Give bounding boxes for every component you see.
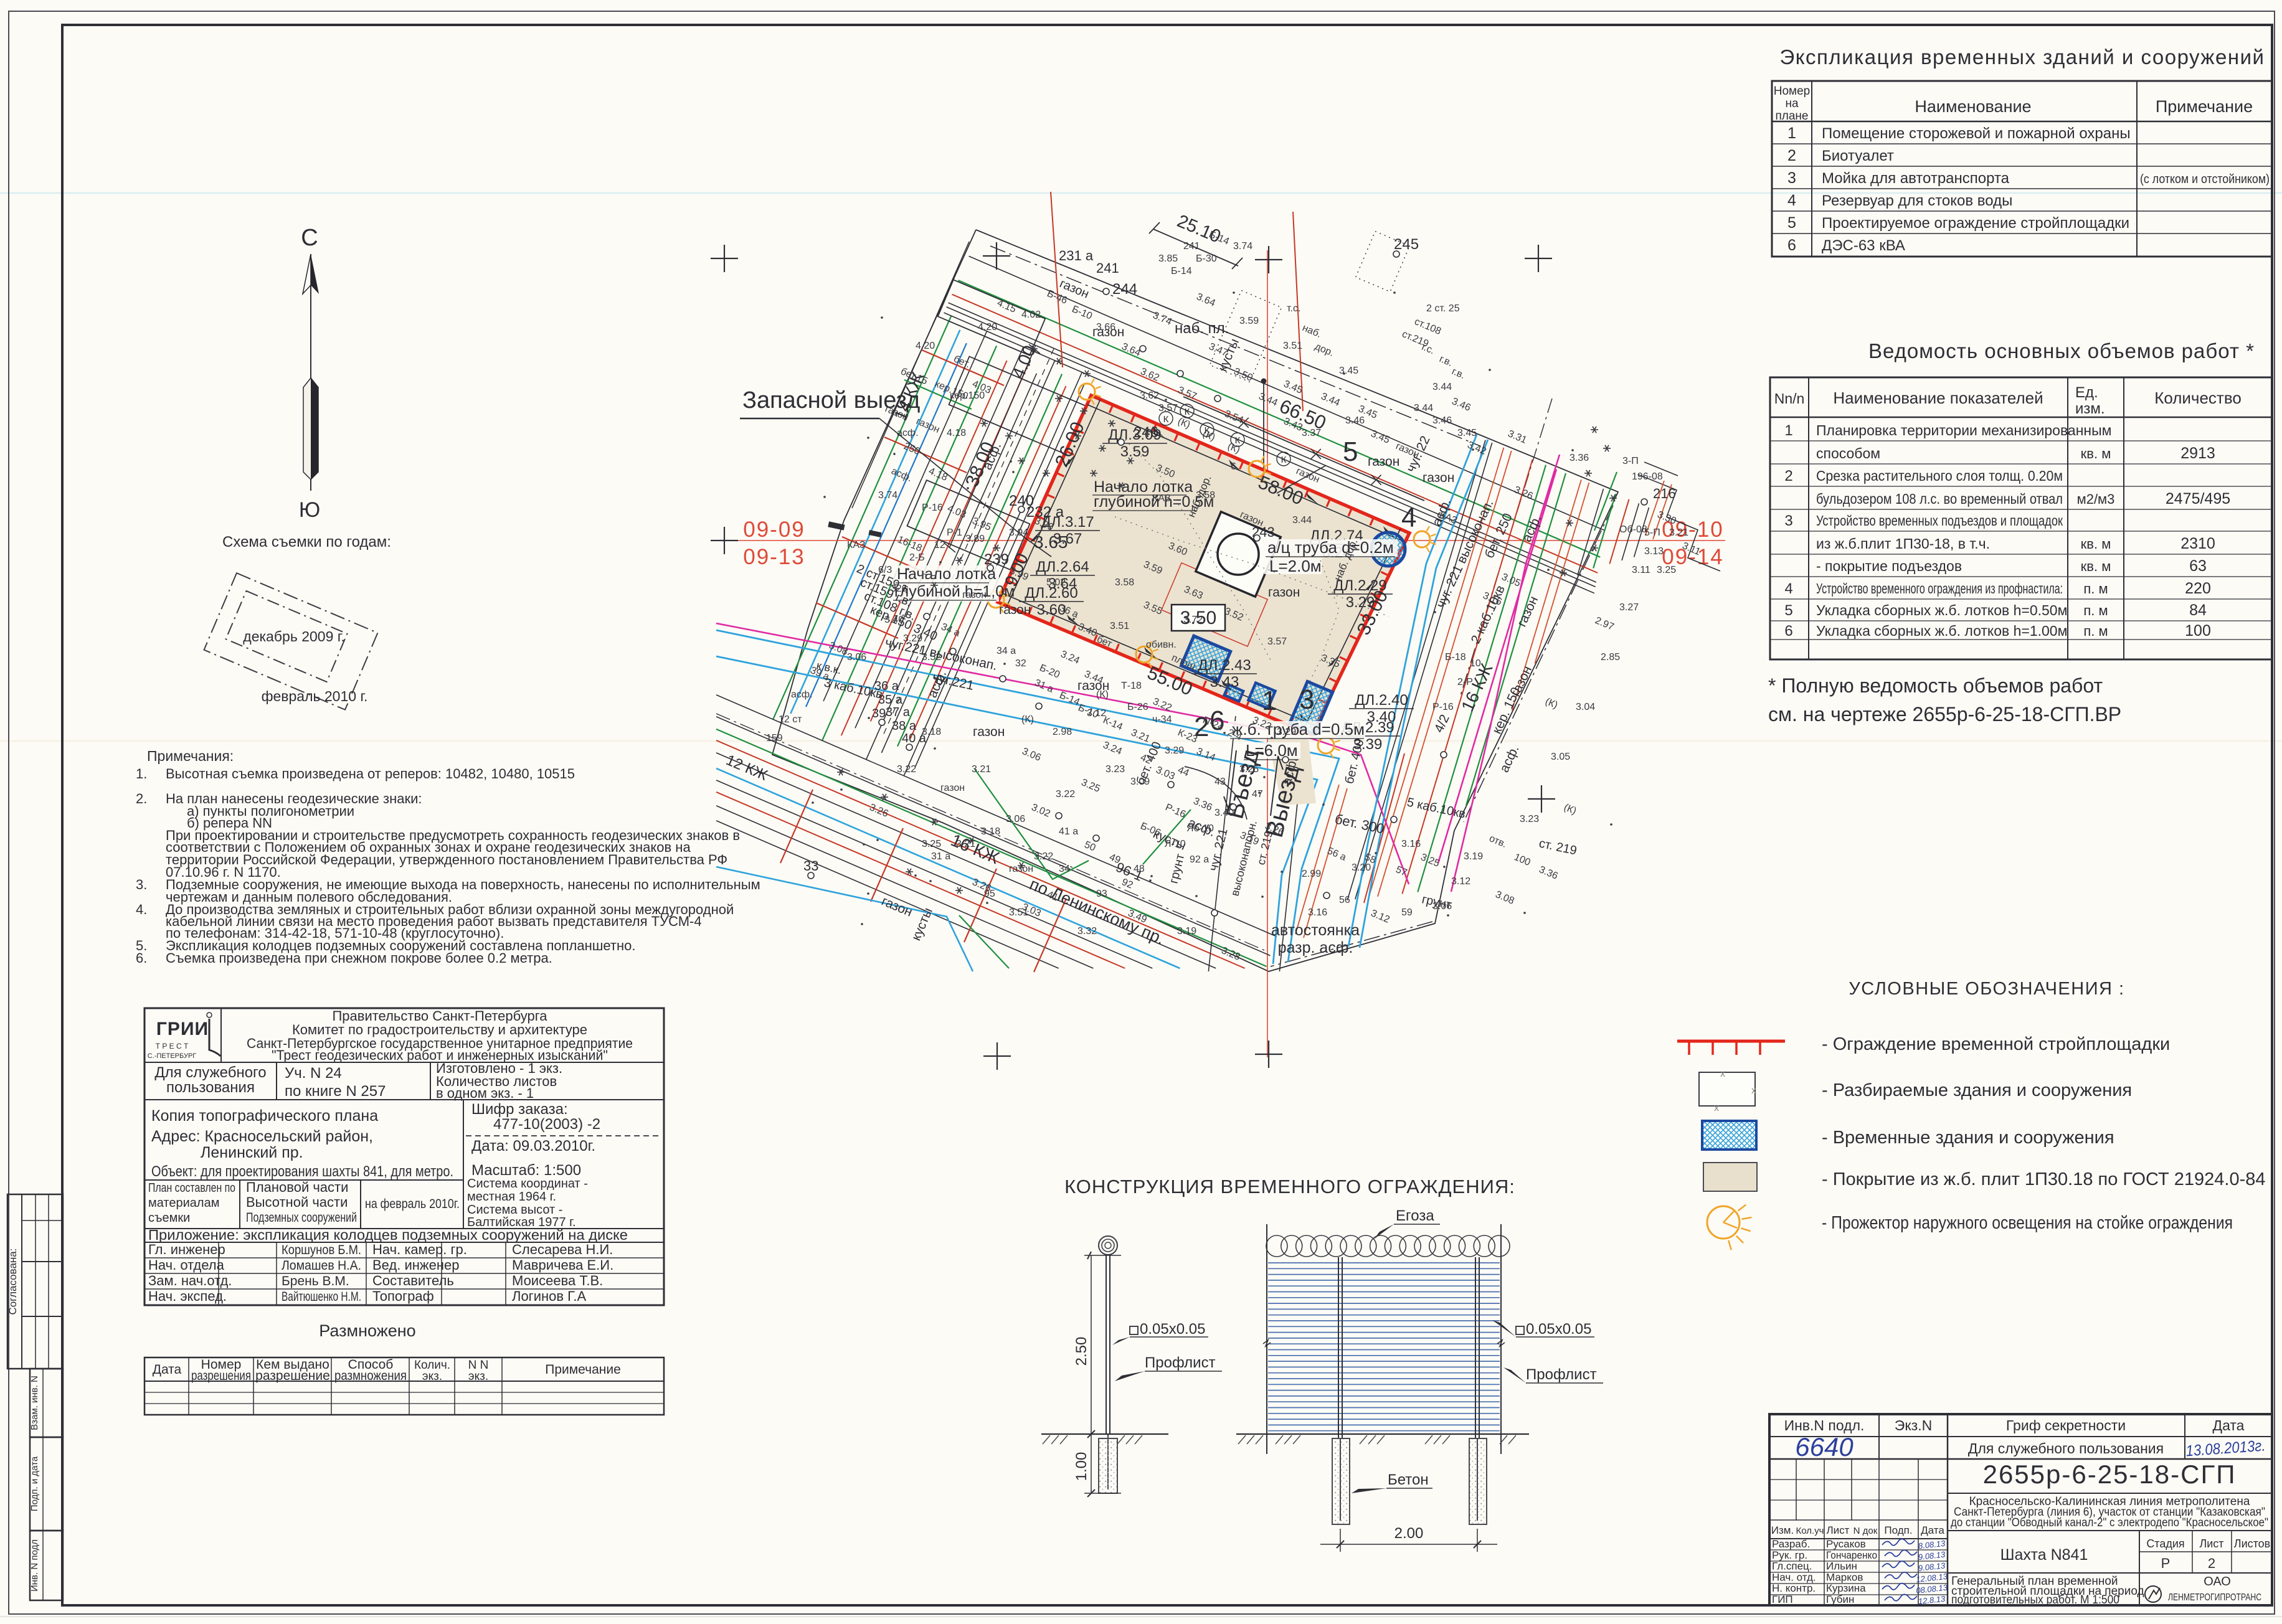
svg-text:12: 12 bbox=[934, 540, 945, 550]
svg-text:Инв.N подл.: Инв.N подл. bbox=[1784, 1417, 1865, 1433]
svg-text:Яб-10: Яб-10 bbox=[1186, 823, 1214, 834]
svg-text:Nn/n: Nn/n bbox=[1774, 390, 1805, 407]
svg-text:3.59: 3.59 bbox=[1239, 316, 1259, 326]
svg-text:3.89: 3.89 bbox=[965, 534, 985, 544]
svg-text:Курзина: Курзина bbox=[1826, 1582, 1866, 1594]
svg-text:1: 1 bbox=[1787, 125, 1796, 142]
svg-text:- Покрытие из ж.б. плит: - Покрытие из ж.б. плит 1П30.18 по ГОСТ … bbox=[1822, 1169, 2266, 1189]
svg-text:* Полную ведомость объемов: * Полную ведомость объемов работ bbox=[1768, 674, 2103, 697]
svg-text:6/3: 6/3 bbox=[878, 565, 892, 575]
svg-text:съемки: съемки bbox=[148, 1211, 190, 1225]
svg-text:3.44: 3.44 bbox=[1414, 403, 1433, 413]
svg-text:План составлен по: План составлен по bbox=[148, 1181, 235, 1195]
svg-text:Согласована:: Согласована: bbox=[7, 1249, 19, 1315]
svg-text:Для служебного: Для служебного bbox=[154, 1064, 266, 1081]
svg-text:4: 4 bbox=[1787, 192, 1796, 209]
svg-text:Л-10: Л-10 bbox=[1165, 839, 1186, 849]
svg-text:Размножено: Размножено bbox=[319, 1321, 415, 1340]
svg-text:Нач. камер. гр.: Нач. камер. гр. bbox=[372, 1242, 467, 1257]
svg-text:3.65: 3.65 bbox=[1034, 532, 1068, 552]
svg-text:3.52: 3.52 bbox=[922, 652, 941, 663]
svg-text:3.21: 3.21 bbox=[972, 764, 991, 775]
svg-text:3.25: 3.25 bbox=[1239, 764, 1259, 775]
svg-text:см. на чертеже 2655р-6-25-1: см. на чертеже 2655р-6-25-18-СГП.ВР bbox=[1768, 703, 2121, 725]
svg-text:3.25: 3.25 bbox=[922, 839, 941, 849]
svg-text:6.: 6. bbox=[136, 950, 147, 966]
svg-text:2.00: 2.00 bbox=[1394, 1525, 1424, 1542]
svg-text:3.62: 3.62 bbox=[1140, 390, 1159, 401]
svg-text:6: 6 bbox=[1787, 237, 1796, 254]
svg-text:10: 10 bbox=[1470, 658, 1481, 669]
svg-text:Резервуар для стоков воды: Резервуар для стоков воды bbox=[1822, 192, 2012, 209]
svg-text:3.23: 3.23 bbox=[1520, 814, 1539, 824]
svg-text:x: x bbox=[1714, 1103, 1719, 1113]
svg-text:2.98: 2.98 bbox=[1053, 727, 1072, 737]
svg-text:Егоза: Егоза bbox=[1396, 1207, 1434, 1224]
svg-text:Лист: Лист bbox=[2199, 1537, 2223, 1550]
svg-text:- Ограждение временной стр: - Ограждение временной стройплощадки bbox=[1822, 1034, 2170, 1054]
svg-text:Гончаренко: Гончаренко bbox=[1826, 1549, 1877, 1561]
svg-text:3.11: 3.11 bbox=[1632, 565, 1650, 575]
svg-text:3.29: 3.29 bbox=[1165, 745, 1184, 756]
svg-text:Взам. инв. N: Взам. инв. N bbox=[29, 1376, 40, 1430]
svg-text:Съемка произведена при снеж: Съемка произведена при снежном покрове б… bbox=[166, 950, 552, 966]
svg-text:Подп.: Подп. bbox=[1884, 1524, 1912, 1536]
svg-text:241: 241 bbox=[1096, 260, 1119, 276]
svg-text:Стадия: Стадия bbox=[2146, 1537, 2184, 1550]
svg-text:Т Р Е С Т: Т Р Е С Т bbox=[156, 1042, 189, 1050]
svg-text:3.20: 3.20 bbox=[1352, 862, 1371, 873]
svg-text:84: 84 bbox=[2189, 602, 2207, 619]
svg-text:февраль 2010 г.: февраль 2010 г. bbox=[262, 688, 368, 704]
svg-text:бульдозером 108 л.с. во вре: бульдозером 108 л.с. во временный отвал bbox=[1816, 491, 2063, 507]
svg-text:5: 5 bbox=[1343, 437, 1358, 467]
svg-text:41 а: 41 а bbox=[1059, 826, 1078, 837]
svg-text:3: 3 bbox=[1784, 512, 1792, 529]
svg-text:1.00: 1.00 bbox=[1073, 1452, 1090, 1481]
svg-text:Срезка растительного слоя т: Срезка растительного слоя толщ. 0.20м bbox=[1816, 468, 2063, 484]
svg-text:3.22: 3.22 bbox=[1034, 851, 1053, 862]
svg-text:100: 100 bbox=[2185, 622, 2211, 640]
svg-text:Дата: Дата bbox=[153, 1362, 182, 1377]
svg-text:Профлист: Профлист bbox=[1145, 1354, 1216, 1371]
svg-text:3.51: 3.51 bbox=[1009, 907, 1028, 918]
svg-text:3.29: 3.29 bbox=[1277, 727, 1296, 737]
svg-text:разрешения: разрешения bbox=[191, 1369, 251, 1383]
svg-text:2: 2 bbox=[1787, 147, 1796, 164]
svg-text:34: 34 bbox=[1059, 864, 1070, 874]
svg-text:Ю: Ю bbox=[299, 498, 320, 522]
svg-text:КАЗ: КАЗ bbox=[1152, 493, 1170, 504]
svg-text:3.23: 3.23 bbox=[1105, 764, 1125, 775]
svg-text:по книге N 257: по книге N 257 bbox=[285, 1083, 386, 1100]
svg-text:Система координат -: Система координат - bbox=[467, 1177, 588, 1191]
svg-text:газон: газон bbox=[1368, 455, 1399, 469]
svg-text:Приложение: экспликация коло: Приложение: экспликация колодцев подземн… bbox=[148, 1227, 628, 1243]
svg-text:К: К bbox=[1185, 407, 1190, 417]
svg-text:Примечания:: Примечания: bbox=[147, 748, 234, 764]
svg-text:Слесарева Н.И.: Слесарева Н.И. bbox=[512, 1242, 613, 1257]
svg-text:К: К bbox=[1281, 455, 1287, 465]
svg-text:93: 93 bbox=[1096, 889, 1107, 899]
svg-text:Р: Р bbox=[2161, 1556, 2171, 1571]
svg-text:3.: 3. bbox=[136, 877, 147, 892]
svg-text:N док: N док bbox=[1854, 1526, 1878, 1536]
svg-text:К: К bbox=[1163, 414, 1169, 425]
svg-text:2 ст. 25: 2 ст. 25 bbox=[1426, 303, 1460, 314]
svg-text:3.19: 3.19 bbox=[1177, 926, 1196, 937]
svg-text:Высотная съемка произведена: Высотная съемка произведена от реперов: … bbox=[166, 766, 575, 781]
svg-text:кв. м: кв. м bbox=[2081, 536, 2111, 552]
svg-text:ДЛ.2.43: ДЛ.2.43 bbox=[1198, 657, 1251, 674]
svg-text:Гл. инженер: Гл. инженер bbox=[148, 1242, 225, 1257]
svg-text:Изм.: Изм. bbox=[1771, 1524, 1794, 1536]
svg-text:3.58: 3.58 bbox=[1115, 577, 1134, 588]
svg-text:32: 32 bbox=[1015, 658, 1026, 669]
svg-text:разр. асф.: разр. асф. bbox=[1278, 939, 1353, 956]
svg-text:(К): (К) bbox=[1021, 714, 1034, 725]
svg-text:4.: 4. bbox=[136, 902, 147, 917]
svg-text:3.45: 3.45 bbox=[1457, 428, 1477, 438]
svg-text:477-10(2003) -2: 477-10(2003) -2 bbox=[493, 1116, 600, 1133]
svg-text:3.29: 3.29 bbox=[903, 633, 922, 644]
svg-text:3.22: 3.22 bbox=[897, 764, 916, 775]
svg-text:т.с.: т.с. bbox=[1287, 303, 1300, 314]
svg-text:39: 39 bbox=[872, 707, 886, 720]
svg-text:x: x bbox=[1751, 1085, 1756, 1096]
svg-text:наб. пл.: наб. пл. bbox=[1175, 320, 1229, 337]
svg-text:Примечание: Примечание bbox=[2156, 97, 2253, 116]
svg-text:газон: газон bbox=[1009, 864, 1033, 874]
svg-text:246: 246 bbox=[1134, 424, 1158, 441]
svg-text:3.94: 3.94 bbox=[1009, 527, 1028, 538]
svg-text:ЛЕНМЕТРОГИПРОТРАНС: ЛЕНМЕТРОГИПРОТРАНС bbox=[2168, 1592, 2261, 1603]
svg-text:31 а: 31 а bbox=[931, 851, 950, 862]
svg-text:Количество: Количество bbox=[2154, 389, 2242, 407]
svg-text:Нач. экспед.: Нач. экспед. bbox=[148, 1288, 227, 1304]
svg-text:Устройство временного огражден: Устройство временного ограждения из проф… bbox=[1816, 580, 2063, 597]
svg-text:5: 5 bbox=[1784, 602, 1792, 619]
svg-text:Подп. и дата: Подп. и дата bbox=[29, 1456, 40, 1511]
svg-text:Наименование показателей: Наименование показателей bbox=[1833, 389, 2043, 407]
svg-text:- Временные здания и соор: - Временные здания и сооружения bbox=[1822, 1128, 2114, 1148]
svg-text:2.50: 2.50 bbox=[1073, 1337, 1090, 1366]
svg-text:Начало лотка: Начало лотка bbox=[897, 565, 996, 583]
svg-text:Шахта N841: Шахта N841 bbox=[2000, 1546, 2088, 1564]
svg-text:местная 1964 г.: местная 1964 г. bbox=[467, 1190, 556, 1204]
svg-text:2655р-6-25-18-СГП: 2655р-6-25-18-СГП bbox=[1983, 1460, 2237, 1489]
svg-text:Мойка для автотранспорта: Мойка для автотранспорта bbox=[1822, 170, 2010, 187]
svg-text:59: 59 bbox=[1401, 907, 1413, 918]
svg-text:Ведомость основных объемов: Ведомость основных объемов работ * bbox=[1868, 339, 2255, 362]
svg-text:Подземных сооружений: Подземных сооружений bbox=[246, 1211, 357, 1225]
svg-text:4: 4 bbox=[1784, 580, 1792, 597]
svg-text:Топограф: Топограф bbox=[372, 1288, 434, 1304]
svg-text:экз.: экз. bbox=[468, 1370, 488, 1383]
svg-text:3.45: 3.45 bbox=[1339, 366, 1358, 376]
svg-text:Масштаб: 1:500: Масштаб: 1:500 bbox=[471, 1162, 581, 1179]
svg-text:в одном экз. - 1: в одном экз. - 1 bbox=[436, 1085, 534, 1101]
svg-text:Вед. инженер: Вед. инженер bbox=[372, 1257, 460, 1273]
svg-text:газон: газон bbox=[1423, 471, 1454, 485]
svg-text:плане: плане bbox=[1775, 110, 1808, 123]
svg-text:3.46: 3.46 bbox=[1345, 415, 1365, 426]
svg-text:Р-16: Р-16 bbox=[922, 503, 943, 513]
svg-text:Мавричева Е.И.: Мавричева Е.И. bbox=[512, 1257, 613, 1273]
svg-text:Рук. гр.: Рук. гр. bbox=[1772, 1549, 1807, 1561]
svg-text:3.19: 3.19 bbox=[1464, 851, 1483, 862]
svg-text:Нач. отд.: Нач. отд. bbox=[1772, 1571, 1816, 1583]
svg-text:3.27: 3.27 bbox=[1619, 602, 1639, 613]
svg-text:Моисеева Т.В.: Моисеева Т.В. bbox=[512, 1273, 603, 1288]
svg-text:220: 220 bbox=[2185, 580, 2211, 597]
svg-text:подготовительных работ. М 1:5: подготовительных работ. М 1:500 bbox=[1951, 1593, 2119, 1607]
svg-text:Листов: Листов bbox=[2234, 1537, 2270, 1550]
svg-text:3.16: 3.16 bbox=[1401, 839, 1421, 849]
svg-text:3: 3 bbox=[1787, 169, 1796, 187]
svg-text:К: К bbox=[1235, 435, 1241, 446]
svg-text:2.99: 2.99 bbox=[1302, 869, 1321, 879]
svg-text:размножения: размножения bbox=[334, 1369, 407, 1383]
svg-text:Примечание: Примечание bbox=[545, 1362, 621, 1377]
svg-text:кв. м: кв. м bbox=[2081, 446, 2111, 461]
svg-text:5.02: 5.02 bbox=[1046, 577, 1066, 588]
svg-text:3.06: 3.06 bbox=[1006, 814, 1025, 824]
svg-text:2-Р: 2-Р bbox=[1457, 677, 1473, 687]
svg-text:ДЛ.2.64: ДЛ.2.64 bbox=[1036, 559, 1089, 575]
svg-text:5: 5 bbox=[1787, 214, 1796, 232]
svg-text:Уч. N 24: Уч. N 24 bbox=[285, 1065, 342, 1082]
svg-text:КАЗ: КАЗ bbox=[847, 540, 865, 550]
svg-text:разрешение: разрешение bbox=[255, 1369, 330, 1383]
svg-text:Экз.N: Экз.N bbox=[1895, 1417, 1932, 1433]
svg-text:36 а: 36 а bbox=[874, 679, 899, 693]
svg-text:2475/495: 2475/495 bbox=[2166, 490, 2230, 507]
svg-text:- Разбираемые здания и со: - Разбираемые здания и сооружения bbox=[1822, 1080, 2132, 1100]
svg-text:Гриф секретности: Гриф секретности bbox=[2006, 1417, 2126, 1433]
svg-text:Копия топографического плана: Копия топографического плана bbox=[151, 1107, 378, 1125]
svg-text:ГРИИ: ГРИИ bbox=[156, 1019, 209, 1039]
svg-text:Лист: Лист bbox=[1827, 1524, 1850, 1536]
svg-text:3.57: 3.57 bbox=[1267, 636, 1287, 647]
svg-text:ОАО: ОАО bbox=[2204, 1575, 2231, 1589]
svg-text:асф.: асф. bbox=[897, 428, 919, 438]
svg-text:3.06: 3.06 bbox=[847, 652, 866, 663]
svg-text:3.74: 3.74 bbox=[1233, 241, 1252, 252]
svg-text:Бетон: Бетон bbox=[1388, 1471, 1429, 1488]
svg-text:асф.: асф. bbox=[791, 689, 813, 700]
svg-text:Плановой части: Плановой части bbox=[246, 1179, 348, 1195]
svg-text:Схема съемки по годам:: Схема съемки по годам: bbox=[222, 534, 391, 550]
svg-text:Биотуалет: Биотуалет bbox=[1822, 148, 1894, 164]
svg-text:2.85: 2.85 bbox=[1601, 652, 1620, 663]
svg-text:12 ст: 12 ст bbox=[779, 714, 802, 725]
svg-text:3.18: 3.18 bbox=[922, 727, 941, 737]
svg-text:3.44: 3.44 bbox=[1432, 382, 1452, 392]
svg-text:3.22: 3.22 bbox=[1056, 789, 1075, 800]
svg-text:(с лотком и отстойником): (с лотком и отстойником) bbox=[2140, 172, 2270, 186]
svg-text:на: на bbox=[1785, 97, 1798, 110]
svg-text:Об-08: Об-08 bbox=[1619, 524, 1647, 535]
svg-text:6: 6 bbox=[1784, 623, 1792, 640]
svg-text:Номер: Номер bbox=[1774, 85, 1810, 98]
svg-text:до станции "Обводный канал-2": до станции "Обводный канал-2" с электрод… bbox=[1951, 1516, 2268, 1529]
svg-text:Ленинский пр.: Ленинский пр. bbox=[201, 1144, 303, 1161]
svg-text:Для служебного пользования: Для служебного пользования bbox=[1968, 1440, 2164, 1456]
svg-text:Русаков: Русаков bbox=[1826, 1538, 1866, 1550]
svg-text:автостоянка: автостоянка bbox=[1271, 922, 1360, 939]
svg-text:56: 56 bbox=[1339, 895, 1350, 905]
svg-text:4.18: 4.18 bbox=[947, 428, 966, 438]
svg-text:Высотной части: Высотной части bbox=[246, 1194, 348, 1210]
svg-text:газон: газон bbox=[999, 603, 1031, 617]
svg-text:6: 6 bbox=[1231, 461, 1236, 472]
svg-text:Зам. нач.отд.: Зам. нач.отд. bbox=[148, 1273, 232, 1288]
svg-text:Составитель: Составитель bbox=[372, 1273, 454, 1288]
svg-text:Ед.: Ед. bbox=[2075, 384, 2098, 401]
svg-text:- Прожектор наружного осве: - Прожектор наружного освещения на стойк… bbox=[1822, 1213, 2233, 1233]
svg-text:Коршунов Б.М.: Коршунов Б.М. bbox=[282, 1243, 361, 1257]
svg-text:4.02: 4.02 bbox=[1021, 309, 1041, 320]
svg-text:4: 4 bbox=[1401, 503, 1416, 533]
svg-text:3.21: 3.21 bbox=[1669, 527, 1688, 538]
svg-text:Система высот -: Система высот - bbox=[467, 1203, 562, 1217]
svg-text:3-П: 3-П bbox=[1622, 456, 1639, 466]
svg-text:Вайтюшенко Н.М.: Вайтюшенко Н.М. bbox=[282, 1290, 361, 1304]
svg-text:газон: газон bbox=[1268, 585, 1300, 600]
svg-text:2: 2 bbox=[1784, 468, 1792, 484]
svg-text:Наименование: Наименование bbox=[1915, 97, 2031, 116]
svg-text:Р-16: Р-16 bbox=[1432, 702, 1454, 712]
svg-text:3.74: 3.74 bbox=[878, 490, 897, 501]
svg-text:С: С bbox=[301, 225, 318, 251]
svg-text:Адрес: Красносельский район,: Адрес: Красносельский район, bbox=[151, 1128, 373, 1145]
svg-text:3.29: 3.29 bbox=[1346, 594, 1375, 611]
svg-text:x: x bbox=[1720, 1069, 1725, 1079]
svg-text:Разраб.: Разраб. bbox=[1772, 1538, 1810, 1550]
svg-text:3.51: 3.51 bbox=[1110, 621, 1129, 631]
svg-text:3.43: 3.43 bbox=[1210, 674, 1239, 691]
svg-text:1: 1 bbox=[1262, 686, 1277, 716]
svg-text:Устройство временных подъезд: Устройство временных подъездов и площадо… bbox=[1816, 512, 2063, 529]
svg-text:Марков: Марков bbox=[1826, 1571, 1863, 1583]
svg-text:3.18: 3.18 bbox=[981, 826, 1000, 837]
svg-text:Дата: 09.03.2010г.: Дата: 09.03.2010г. bbox=[471, 1138, 595, 1154]
svg-text:пользования: пользования bbox=[166, 1079, 255, 1096]
svg-text:37 а: 37 а bbox=[886, 706, 911, 719]
svg-text:47: 47 bbox=[1252, 789, 1263, 800]
svg-text:1: 1 bbox=[1784, 422, 1792, 439]
svg-text:0.05х0.05: 0.05х0.05 bbox=[1526, 1321, 1591, 1338]
svg-text:Р-1: Р-1 bbox=[947, 527, 962, 538]
svg-text:Б-26: Б-26 bbox=[1127, 702, 1148, 712]
svg-text:Ильин: Ильин bbox=[1826, 1560, 1857, 1572]
svg-text:2913: 2913 bbox=[2180, 445, 2215, 462]
svg-text:3.21: 3.21 bbox=[956, 839, 975, 849]
svg-text:КОНСТРУКЦИЯ ВРЕМЕННОГО ОГРАЖ: КОНСТРУКЦИЯ ВРЕМЕННОГО ОГРАЖДЕНИЯ: bbox=[1064, 1176, 1515, 1197]
svg-text:п.Н: п.Н bbox=[922, 571, 937, 582]
svg-text:Помещение сторожевой и пожа: Помещение сторожевой и пожарной охраны bbox=[1822, 125, 2131, 142]
svg-text:3.66: 3.66 bbox=[1096, 322, 1115, 333]
svg-text:Укладка сборных ж.б. лотков: Укладка сборных ж.б. лотков h=1.00м bbox=[1816, 623, 2067, 639]
svg-text:газон: газон bbox=[940, 783, 965, 793]
svg-text:способом: способом bbox=[1816, 445, 1880, 461]
svg-text:0.05х0.05: 0.05х0.05 bbox=[1140, 1321, 1205, 1338]
svg-text:кер.150: кер.150 bbox=[950, 390, 985, 401]
svg-text:обивн.: обивн. bbox=[1146, 640, 1177, 650]
svg-text:Брень В.М.: Брень В.М. bbox=[282, 1274, 349, 1288]
svg-text:4.20: 4.20 bbox=[916, 341, 935, 351]
svg-text:1.: 1. bbox=[136, 766, 147, 781]
svg-text:Экспликация временных зданий: Экспликация временных зданий и сооружени… bbox=[1780, 45, 2265, 68]
svg-text:3.37: 3.37 bbox=[1302, 428, 1321, 438]
svg-text:4.20: 4.20 bbox=[978, 322, 997, 333]
svg-text:33: 33 bbox=[803, 858, 818, 874]
svg-text:48: 48 bbox=[1134, 864, 1145, 874]
svg-text:326: 326 bbox=[891, 583, 907, 594]
svg-text:92 а: 92 а bbox=[1190, 854, 1209, 865]
svg-text:Профлист: Профлист bbox=[1526, 1366, 1597, 1383]
svg-text:из ж.б.плит 1П30-18, в т.ч: из ж.б.плит 1П30-18, в т.ч. bbox=[1816, 536, 1990, 552]
svg-text:материалам: материалам bbox=[148, 1196, 219, 1210]
svg-text:196-08: 196-08 bbox=[1632, 471, 1663, 482]
svg-text:газон: газон bbox=[962, 590, 987, 600]
svg-text:К: К bbox=[1205, 425, 1210, 436]
svg-text:3: 3 bbox=[1299, 684, 1314, 715]
svg-text:Дата: Дата bbox=[2213, 1417, 2245, 1433]
svg-text:Объект: для проектирования ш: Объект: для проектирования шахты 841, дл… bbox=[151, 1163, 453, 1180]
svg-text:изм.: изм. bbox=[2075, 400, 2105, 417]
svg-text:3.85: 3.85 bbox=[1158, 253, 1178, 264]
svg-text:п. м: п. м bbox=[2083, 581, 2108, 597]
svg-text:L=2.0м: L=2.0м bbox=[1269, 557, 1322, 575]
svg-text:3.12: 3.12 bbox=[1451, 876, 1470, 887]
svg-text:Укладка сборных ж.б. лотков: Укладка сборных ж.б. лотков h=0.50м bbox=[1816, 602, 2067, 618]
svg-text:6640: 6640 bbox=[1795, 1432, 1854, 1461]
svg-text:2-Б: 2-Б bbox=[909, 552, 925, 563]
svg-text:Гл.спец.: Гл.спец. bbox=[1772, 1560, 1812, 1572]
svg-text:2: 2 bbox=[2208, 1556, 2215, 1571]
svg-text:Шифр заказа:: Шифр заказа: bbox=[471, 1101, 568, 1118]
svg-text:- покрытие подъездов: - покрытие подъездов bbox=[1816, 558, 1962, 574]
svg-text:ГИП: ГИП bbox=[1772, 1593, 1793, 1605]
svg-text:3.16: 3.16 bbox=[1308, 907, 1327, 918]
svg-text:Губин: Губин bbox=[1826, 1593, 1854, 1605]
svg-text:Б-18: Б-18 bbox=[1445, 652, 1466, 663]
svg-text:3.05: 3.05 bbox=[1551, 752, 1570, 762]
svg-text:газон: газон bbox=[973, 725, 1005, 739]
svg-text:09-09: 09-09 bbox=[743, 517, 805, 542]
svg-text:Нач. отдела: Нач. отдела bbox=[148, 1257, 225, 1273]
svg-text:п. м: п. м bbox=[2083, 603, 2108, 618]
svg-text:3.40: 3.40 bbox=[1214, 808, 1234, 818]
svg-text:3.25: 3.25 bbox=[1657, 565, 1676, 575]
svg-text:35 а: 35 а bbox=[878, 693, 903, 707]
svg-text:Инв. N подл: Инв. N подл bbox=[29, 1539, 40, 1592]
svg-text:3.59: 3.59 bbox=[1120, 443, 1150, 460]
svg-text:245: 245 bbox=[1394, 236, 1419, 253]
svg-text:3.13: 3.13 bbox=[1644, 546, 1664, 557]
svg-text:3.06: 3.06 bbox=[1432, 901, 1452, 912]
svg-text:кв. м: кв. м bbox=[2081, 559, 2111, 574]
svg-text:Логинов Г.А: Логинов Г.А bbox=[512, 1288, 587, 1304]
svg-text:Н. контр.: Н. контр. bbox=[1772, 1582, 1816, 1594]
svg-text:на февраль 2010г.: на февраль 2010г. bbox=[365, 1197, 460, 1211]
svg-text:3.04: 3.04 bbox=[1576, 702, 1595, 712]
svg-text:34 а: 34 а bbox=[997, 646, 1016, 656]
svg-text:38 а: 38 а bbox=[892, 719, 917, 733]
svg-text:241: 241 bbox=[1183, 241, 1200, 252]
